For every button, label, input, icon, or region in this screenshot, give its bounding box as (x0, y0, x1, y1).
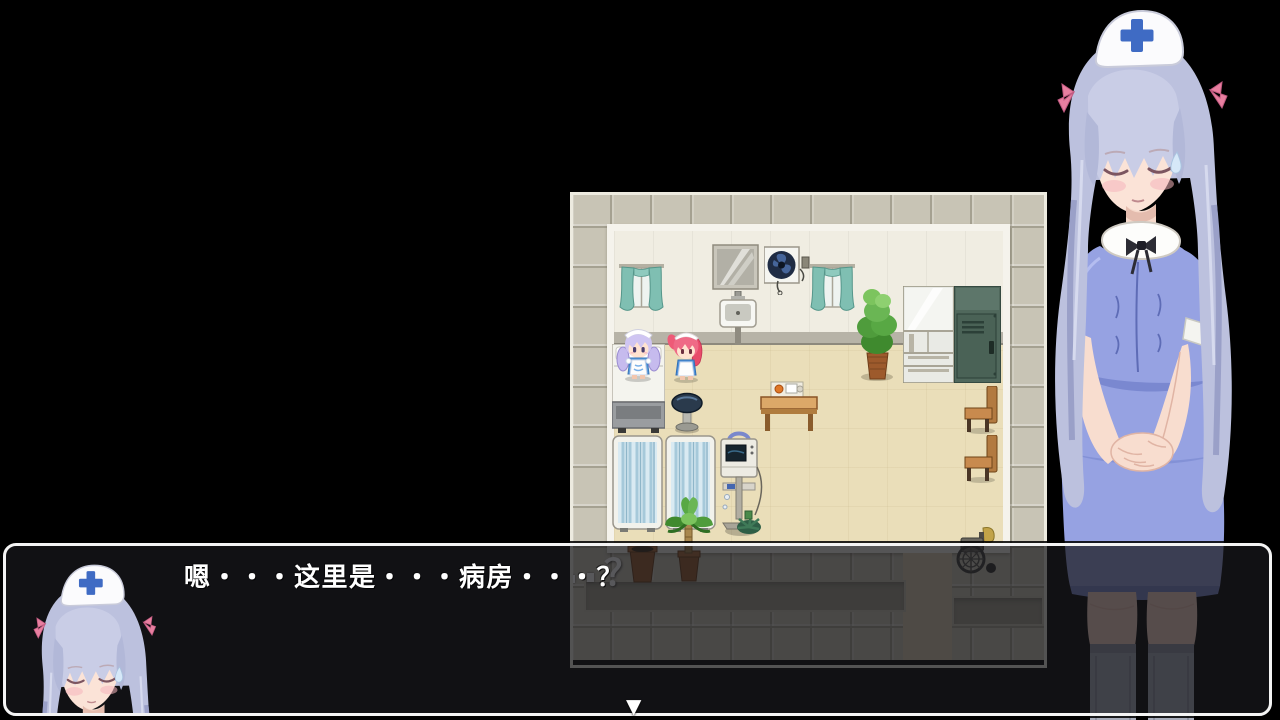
medical-monitor-icon (715, 431, 763, 539)
npc-pink-maid[interactable] (666, 330, 708, 383)
window-left-icon (618, 262, 665, 314)
ventilation-fan-icon (764, 245, 810, 295)
npc-purple-maid[interactable] (614, 326, 663, 382)
chair-icon (961, 435, 1002, 483)
privacy-screen-icon (611, 434, 664, 533)
table-meal-tray-icon (759, 380, 819, 433)
locker-icon (954, 286, 1001, 383)
stool-icon (669, 391, 705, 434)
potted-plant-icon (855, 287, 900, 382)
sink-icon (718, 291, 758, 345)
mirror-icon (712, 244, 759, 290)
refrigerator-icon (903, 286, 954, 383)
window-right-icon (809, 262, 856, 314)
game-screen: ？ (0, 0, 1280, 720)
ward-room (614, 231, 1003, 546)
dialogue-window[interactable]: 嗯・・・这里是・・・病房・・・？ (3, 543, 1272, 716)
dialogue-text: 嗯・・・这里是・・・病房・・・？ (184, 561, 1184, 595)
dialogue-portrait-nurse (21, 556, 165, 713)
chair-icon (961, 386, 1002, 434)
continue-indicator-icon[interactable]: ▼ (626, 694, 641, 718)
